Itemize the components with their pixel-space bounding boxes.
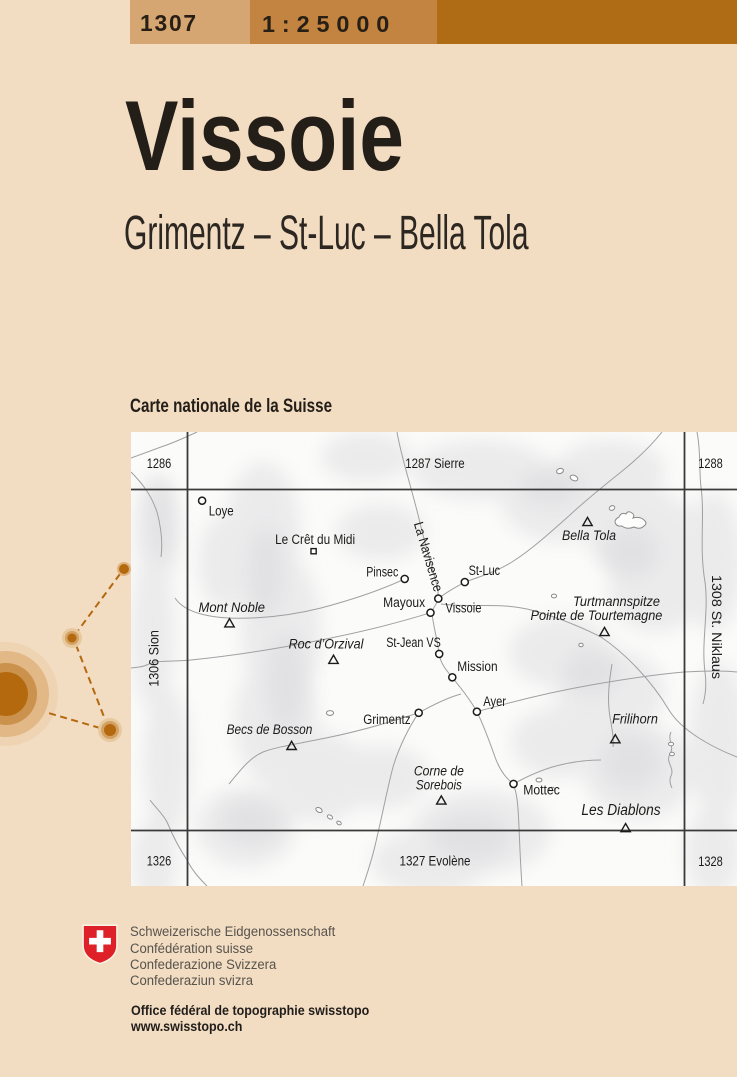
svg-text:Mont Noble: Mont Noble — [199, 600, 266, 616]
svg-text:1308 St. Niklaus: 1308 St. Niklaus — [708, 575, 724, 679]
svg-text:Ayer: Ayer — [483, 694, 506, 710]
svg-text:Loye: Loye — [209, 503, 234, 519]
svg-text:1287 Sierre: 1287 Sierre — [405, 456, 465, 472]
svg-text:1286: 1286 — [147, 456, 172, 472]
svg-text:Bella Tola: Bella Tola — [562, 528, 616, 544]
svg-text:Vissoie: Vissoie — [446, 601, 482, 617]
svg-text:Mottec: Mottec — [523, 783, 560, 799]
svg-text:St-Jean VS: St-Jean VS — [386, 635, 441, 651]
svg-text:1328: 1328 — [698, 854, 723, 870]
svg-text:Les Diablons: Les Diablons — [581, 802, 660, 819]
svg-text:Pinsec: Pinsec — [366, 565, 398, 581]
svg-text:Mission: Mission — [457, 659, 497, 675]
svg-text:1326: 1326 — [147, 854, 172, 870]
svg-text:1306 Sion: 1306 Sion — [146, 630, 162, 687]
svg-text:Le Crêt du Midi: Le Crêt du Midi — [275, 532, 355, 548]
svg-text:Mayoux: Mayoux — [383, 595, 425, 611]
svg-text:Becs de Bosson: Becs de Bosson — [227, 722, 313, 738]
svg-text:Pointe de Tourtemagne: Pointe de Tourtemagne — [531, 608, 663, 624]
svg-text:Sorebois: Sorebois — [416, 777, 462, 793]
svg-text:St-Luc: St-Luc — [469, 563, 501, 579]
svg-text:1288: 1288 — [698, 456, 723, 472]
svg-text:Roc d’Orzival: Roc d’Orzival — [289, 637, 365, 653]
svg-text:Grimentz: Grimentz — [363, 712, 410, 728]
svg-text:1327 Evolène: 1327 Evolène — [400, 853, 471, 869]
svg-text:Frilihorn: Frilihorn — [612, 712, 658, 728]
